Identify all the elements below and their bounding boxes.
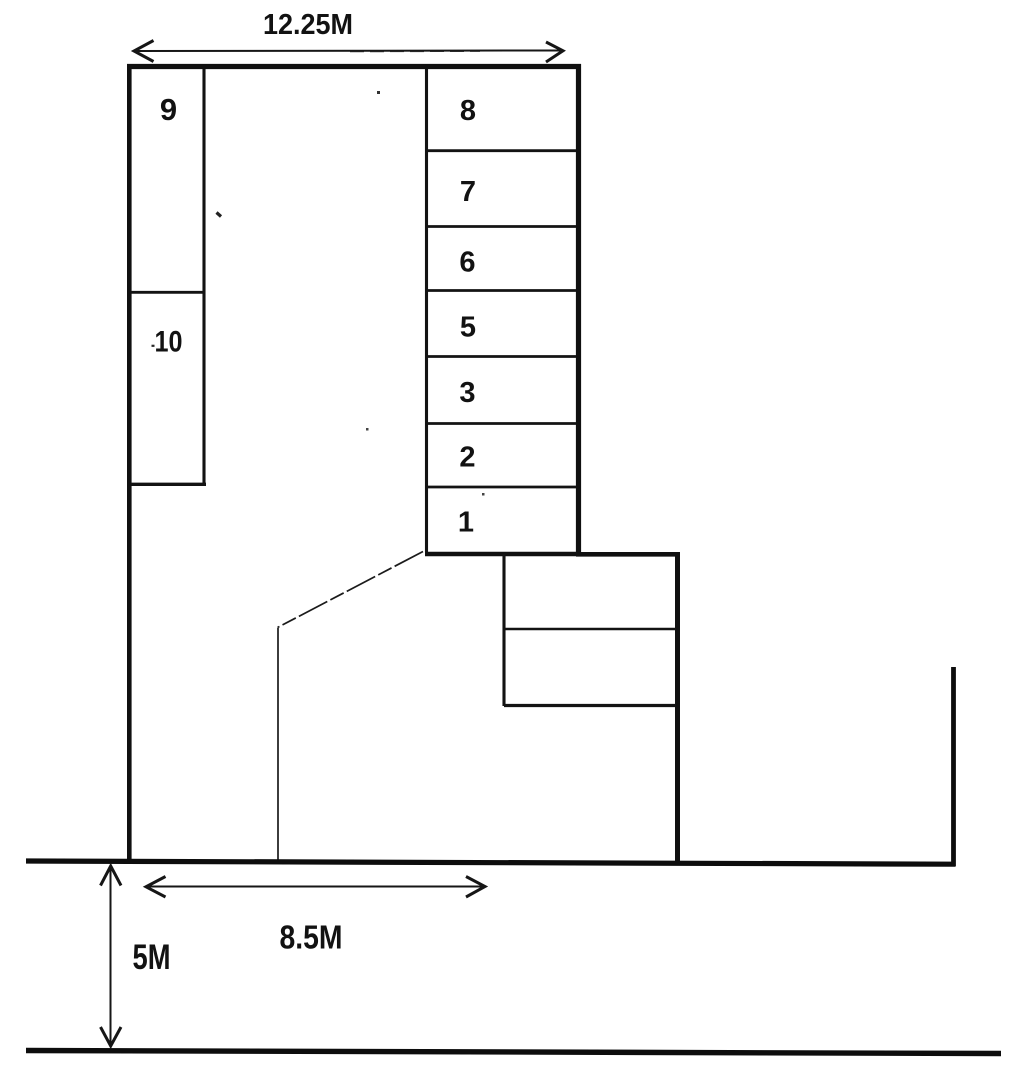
- svg-text:8.5M: 8.5M: [280, 919, 343, 956]
- svg-text:9: 9: [160, 92, 177, 127]
- svg-text:3: 3: [459, 377, 475, 409]
- svg-text:6: 6: [459, 247, 475, 279]
- svg-text:10: 10: [155, 326, 183, 359]
- svg-text:1: 1: [458, 507, 474, 539]
- svg-text:8: 8: [460, 95, 476, 127]
- svg-text:2: 2: [459, 442, 475, 474]
- svg-text:12.25M: 12.25M: [263, 9, 353, 41]
- svg-text:5: 5: [460, 312, 476, 344]
- svg-text:5M: 5M: [133, 938, 171, 977]
- svg-text:7: 7: [460, 176, 476, 208]
